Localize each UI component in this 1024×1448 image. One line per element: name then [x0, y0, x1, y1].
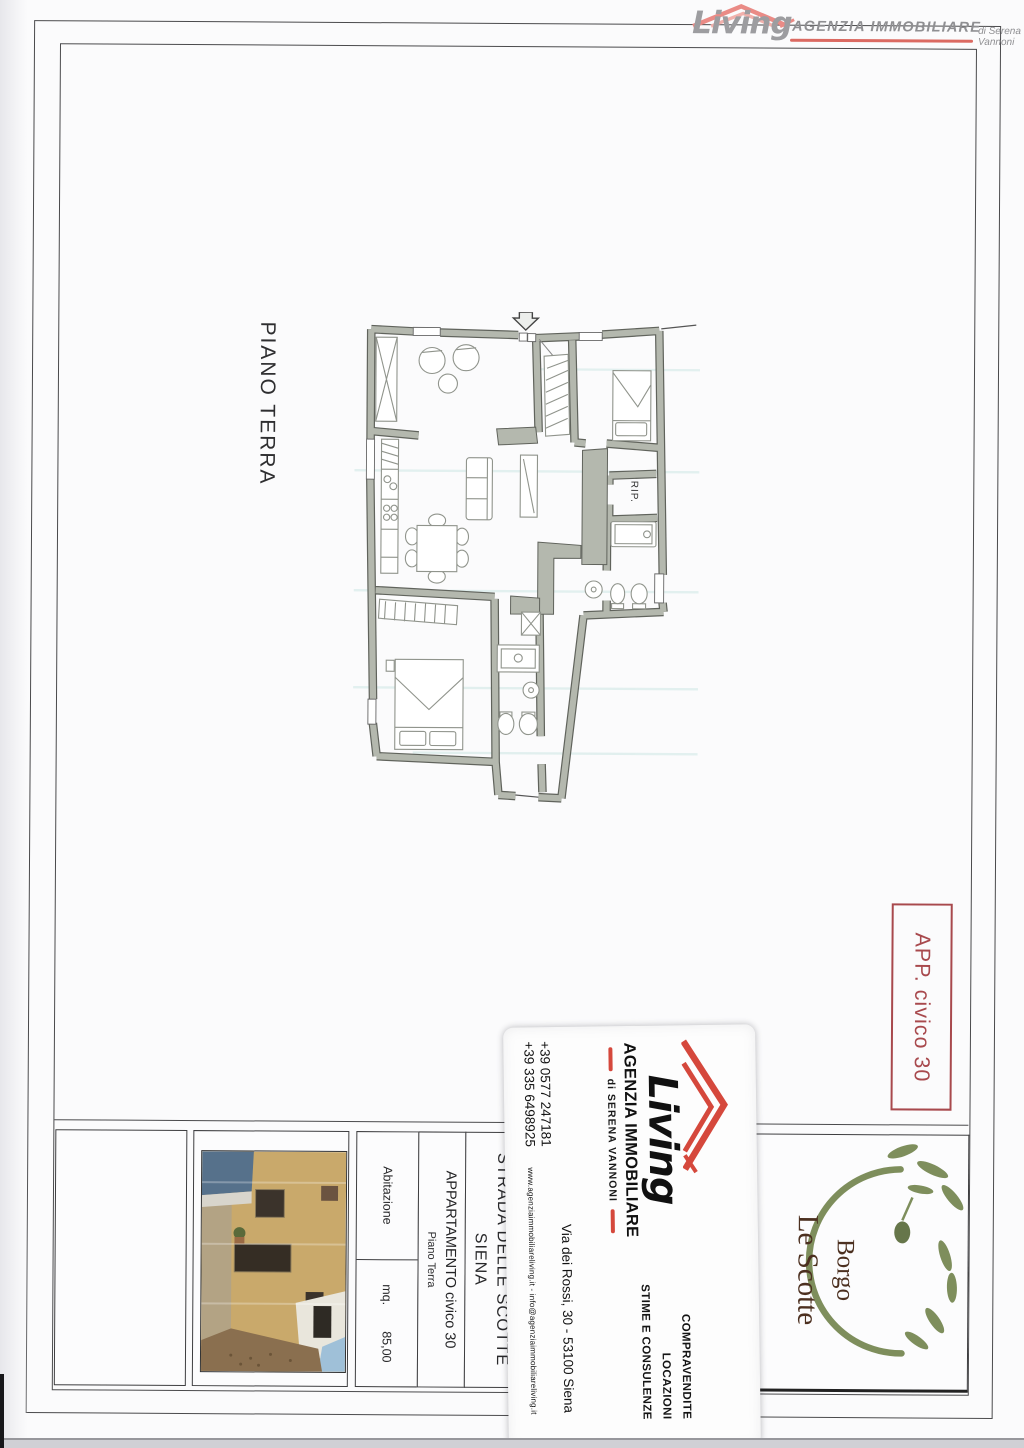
- titleblock-category-cell: Abitazione mq.85,00: [355, 1131, 420, 1387]
- residence-logo: Borgo Le Scotte: [787, 1169, 862, 1371]
- card-web-email: www.agenziaimmobiliareliving.it - info@a…: [526, 1167, 538, 1414]
- scanned-floorplan-sheet: Living AGENZIA IMMOBILIARE di Serena Van…: [0, 0, 1024, 1448]
- card-phone-1: +39 0577 247181: [536, 1041, 553, 1147]
- card-service-1: COMPRAVENDITE: [675, 1283, 697, 1419]
- brand-name: Living: [692, 5, 792, 42]
- card-phone-2: +39 335 6498925: [520, 1041, 537, 1147]
- address-line2: SIENA: [469, 1153, 491, 1367]
- unit-text: APPARTAMENTO civico 30 Piano Terra: [422, 1171, 462, 1349]
- area-text: mq.85,00: [379, 1284, 393, 1362]
- area-cell: mq.85,00: [356, 1259, 418, 1387]
- red-dash-icon: [609, 1048, 613, 1072]
- card-roof-chevron-icon: [681, 1035, 733, 1176]
- brand-underline: [790, 39, 973, 43]
- category-cell: Abitazione: [357, 1132, 419, 1259]
- scan-edge-left: [0, 0, 28, 1448]
- titleblock-empty-cell: [54, 1129, 188, 1386]
- titleblock-residence-cell: Borgo Le Scotte: [750, 1133, 970, 1392]
- card-service-3: STIME E CONSULENZE: [635, 1284, 657, 1420]
- card-brand-subtitle: AGENZIA IMMOBILIARE: [619, 1034, 641, 1246]
- card-brand: Living: [640, 1033, 684, 1246]
- card-services: COMPRAVENDITE LOCAZIONI STIME E CONSULEN…: [635, 1283, 697, 1419]
- area-label: mq.: [380, 1284, 394, 1305]
- floor-label: PIANO TERRA: [247, 312, 286, 494]
- business-card-face: Living AGENZIA IMMOBILIARE di SERENA VAN…: [503, 1024, 761, 1448]
- card-byline: di SERENA VANNONI: [605, 1079, 619, 1202]
- card-logo-block: Living AGENZIA IMMOBILIARE di SERENA VAN…: [604, 1033, 734, 1247]
- building-photo: [200, 1150, 347, 1373]
- area-value: 85,00: [379, 1331, 393, 1362]
- category-label: Abitazione: [380, 1166, 394, 1224]
- brand-byline: di Serena Vannoni: [978, 26, 1024, 48]
- brand-subtitle: AGENZIA IMMOBILIARE: [792, 19, 981, 36]
- agency-logo: Living AGENZIA IMMOBILIARE di Serena Van…: [684, 1, 1024, 53]
- card-phones: +39 0577 247181 +39 335 6498925: [520, 1041, 553, 1147]
- residence-line2: Le Scotte: [787, 1215, 828, 1326]
- unit-badge-text: APP. civico 30: [909, 932, 935, 1082]
- scan-edge-bottom: [0, 1438, 1024, 1448]
- red-dash-icon: [611, 1209, 615, 1233]
- unit-line1: APPARTAMENTO civico 30: [439, 1171, 462, 1349]
- unit-badge: APP. civico 30: [891, 903, 953, 1110]
- closet-label: RIP.: [628, 481, 639, 503]
- scan-edge-corner: [0, 1374, 4, 1448]
- titleblock-photo-cell: [192, 1130, 350, 1387]
- titleblock-unit-cell: APPARTAMENTO civico 30 Piano Terra: [417, 1131, 467, 1387]
- residence-name: Borgo Le Scotte: [787, 1215, 862, 1326]
- card-address: Via dei Rossi, 30 - 53100 Siena: [559, 1224, 577, 1413]
- card-service-2: LOCAZIONI: [655, 1284, 677, 1420]
- unit-line2: Piano Terra: [422, 1171, 440, 1349]
- floor-label-text: PIANO TERRA: [254, 321, 279, 485]
- residence-line1: Borgo: [827, 1215, 862, 1326]
- floorplan-drawing: RIP.: [352, 311, 700, 805]
- business-card: Living AGENZIA IMMOBILIARE di SERENA VAN…: [503, 1024, 761, 1448]
- card-byline-row: di SERENA VANNONI: [604, 1034, 619, 1246]
